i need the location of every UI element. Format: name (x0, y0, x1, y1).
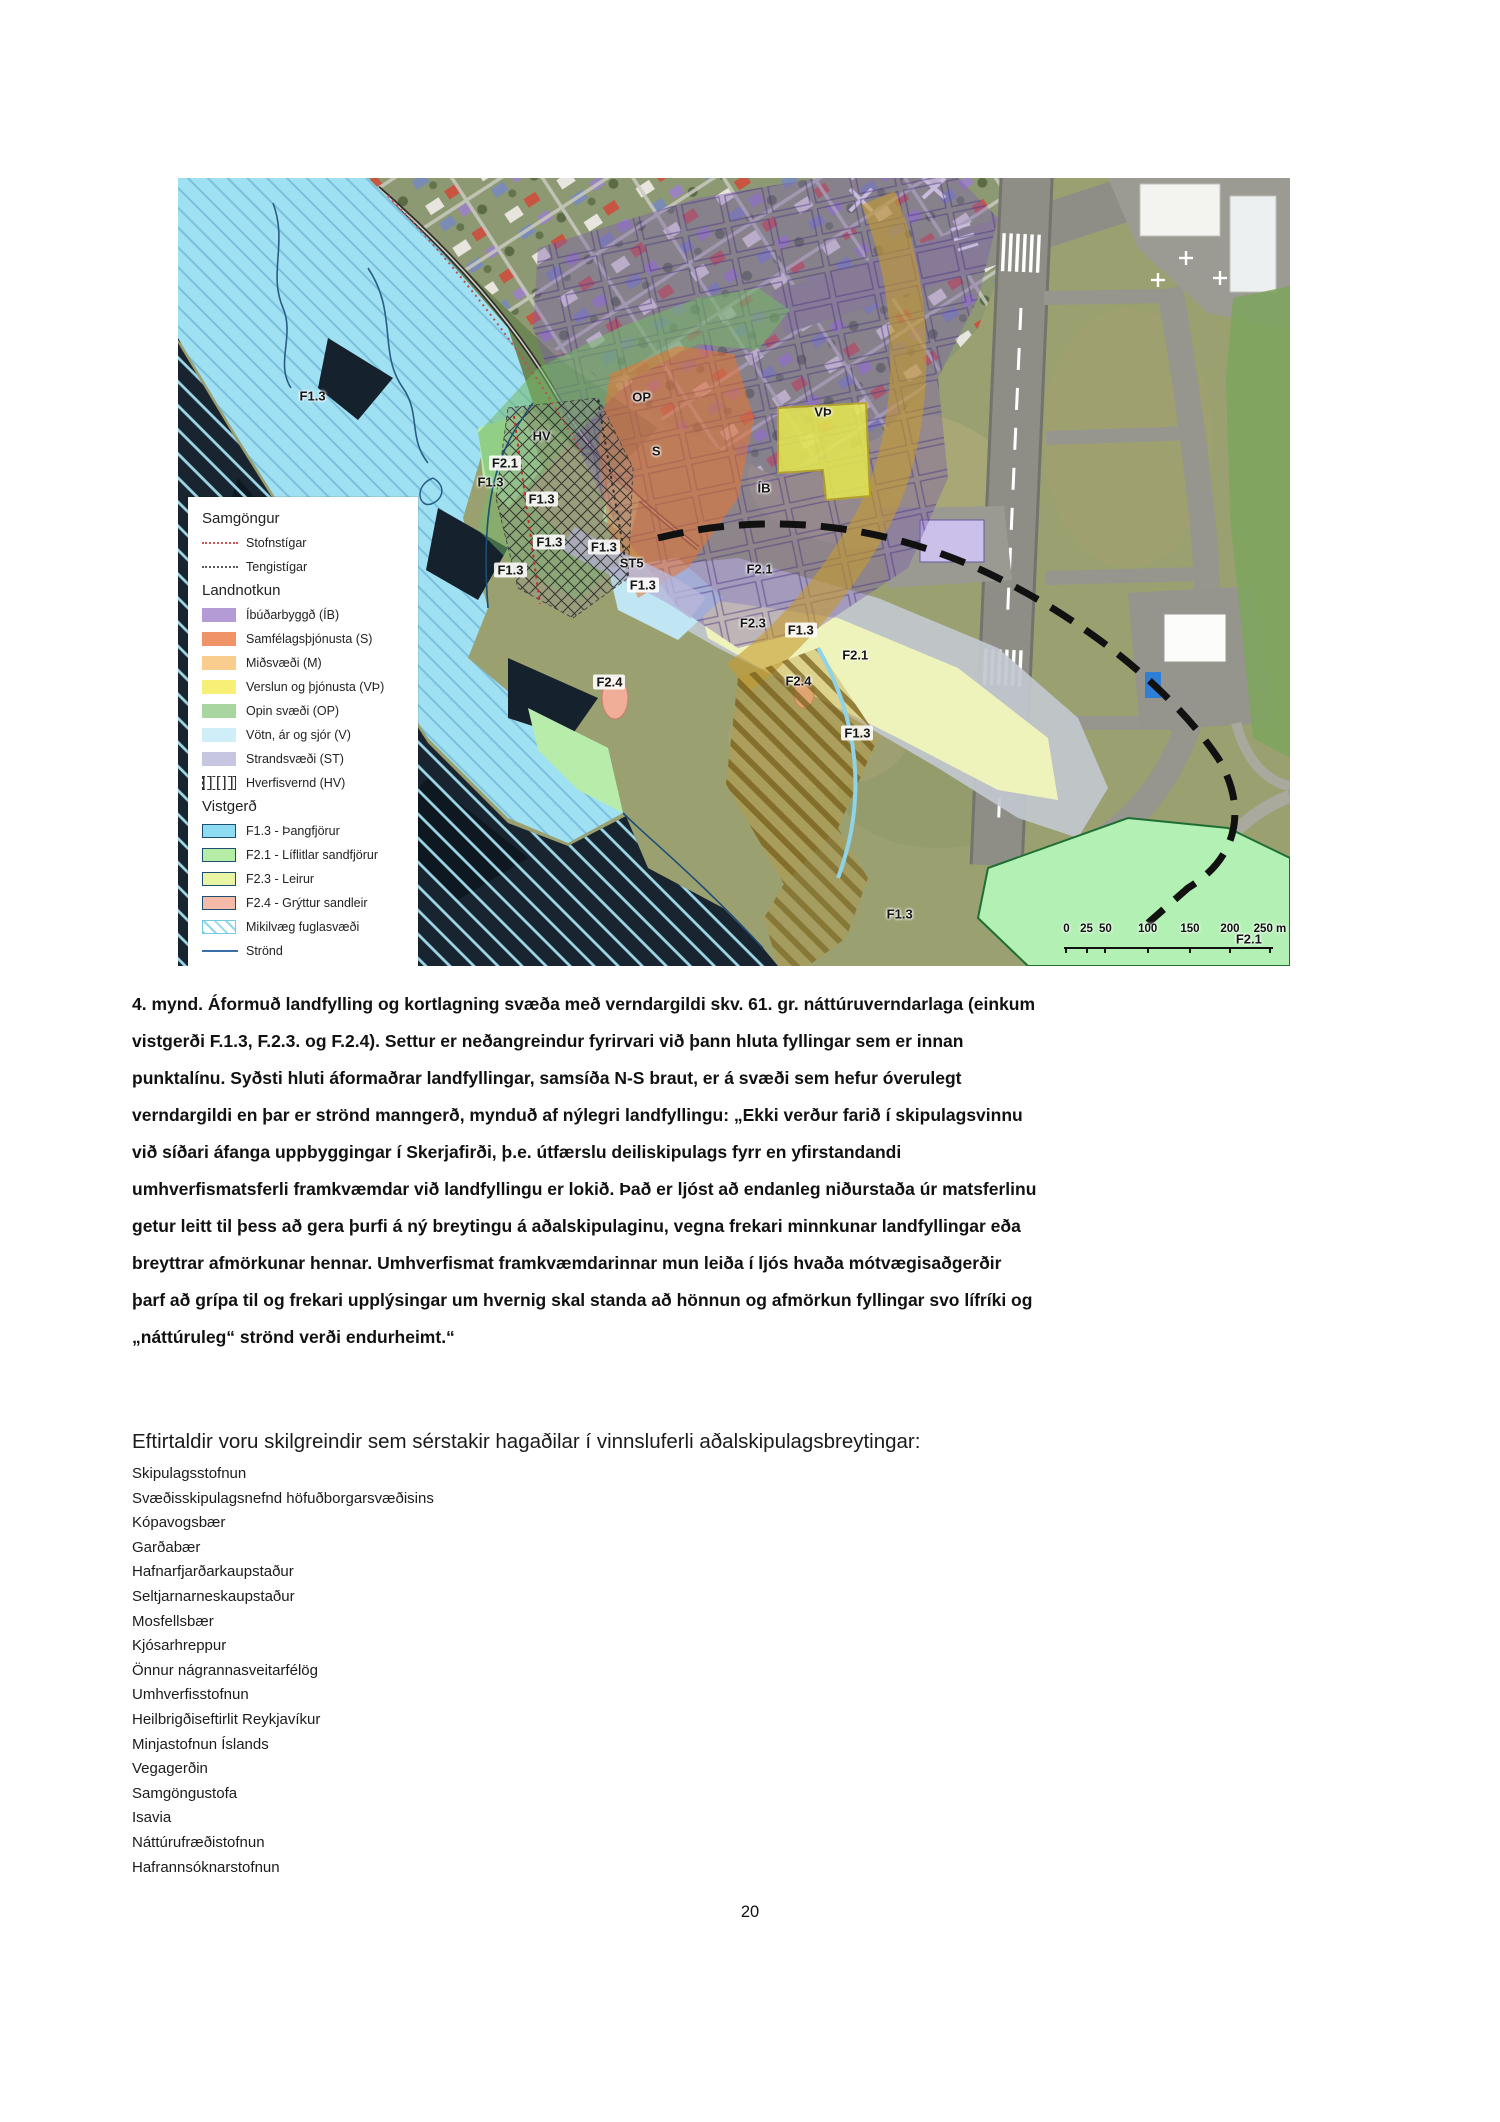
dotted-red-line-icon (202, 542, 238, 544)
color-swatch (202, 848, 236, 862)
shoreline-line-icon (202, 950, 238, 952)
document-page: F1.3F1.3F1.3F1.3F1.3F1.3F1.3F1.3F1.3F1.3… (0, 0, 1500, 2122)
bird-area-hatch-icon (202, 920, 236, 934)
list-item: Umhverfisstofnun (132, 1683, 434, 1708)
legend-row: F1.3 - Þangfjörur (202, 819, 418, 843)
dotted-black-line-icon (202, 566, 238, 568)
list-item: Vegagerðin (132, 1757, 434, 1782)
hangar-building (1140, 184, 1220, 236)
list-item: Kjósarhreppur (132, 1634, 434, 1659)
legend-row: F2.4 - Grýttur sandleir (202, 891, 418, 915)
list-item: Mosfellsbær (132, 1610, 434, 1635)
stakeholders-heading: Eftirtaldir voru skilgreindir sem sérsta… (132, 1430, 920, 1454)
legend-row: Verslun og þjónusta (VÞ) (202, 675, 418, 699)
color-swatch (202, 728, 236, 742)
legend-row: Vötn, ár og sjór (V) (202, 723, 418, 747)
list-item: Isavia (132, 1806, 434, 1831)
caption-line: þarf að grípa til og frekari upplýsingar… (132, 1282, 1390, 1319)
caption-line: getur leitt til þess að gera þurfi á ný … (132, 1208, 1390, 1245)
legend-section-title: Samgöngur (202, 510, 418, 527)
color-swatch (202, 680, 236, 694)
color-swatch (202, 608, 236, 622)
legend-row: F2.1 - Líflitlar sandfjörur (202, 843, 418, 867)
legend-row: Strönd (202, 939, 418, 963)
legend-row: Íbúðarbyggð (ÍB) (202, 603, 418, 627)
color-swatch (202, 752, 236, 766)
list-item: Hafnarfjarðarkaupstaður (132, 1560, 434, 1585)
legend-row: Strandsvæði (ST) (202, 747, 418, 771)
legend-row: Tengistígar (202, 555, 418, 579)
hangar-building (1230, 196, 1276, 292)
list-item: Svæðisskipulagsnefnd höfuðborgarsvæðisin… (132, 1487, 434, 1512)
list-item: Garðabær (132, 1536, 434, 1561)
caption-line: punktalínu. Syðsti hluti áformaðrar land… (132, 1060, 1390, 1097)
color-swatch (202, 872, 236, 886)
hangar-building (1164, 614, 1226, 662)
caption-line: 4. mynd. Áformuð landfylling og kortlagn… (132, 986, 1390, 1023)
caption-line: breyttrar afmörkunar hennar. Umhverfisma… (132, 1245, 1390, 1282)
map-legend: Samgöngur Stofnstígar Tengistígar Landno… (188, 497, 418, 966)
list-item: Minjastofnun Íslands (132, 1733, 434, 1758)
caption-line: umhverfismatsferli framkvæmdar við landf… (132, 1171, 1390, 1208)
f24-gravel-patch (602, 677, 628, 719)
caption-line: við síðari áfanga uppbyggingar í Skerjaf… (132, 1134, 1390, 1171)
hatch-swatch-icon (202, 776, 236, 790)
stakeholders-list: Skipulagsstofnun Svæðisskipulagsnefnd hö… (132, 1462, 434, 1880)
legend-row: Mikilvæg fuglasvæði (202, 915, 418, 939)
legend-row: F2.3 - Leirur (202, 867, 418, 891)
list-item: Skipulagsstofnun (132, 1462, 434, 1487)
legend-section-title: Vistgerð (202, 798, 418, 815)
color-swatch (202, 632, 236, 646)
caption-line: vistgerði F.1.3, F.2.3. og F.2.4). Settu… (132, 1023, 1390, 1060)
caption-line: „náttúruleg“ strönd verði endurheimt.“ (132, 1319, 1390, 1356)
color-swatch (202, 824, 236, 838)
list-item: Kópavogsbær (132, 1511, 434, 1536)
legend-row: Stofnstígar (202, 531, 418, 555)
legend-row: Opin svæði (OP) (202, 699, 418, 723)
legend-row: Miðsvæði (M) (202, 651, 418, 675)
list-item: Önnur nágrannasveitarfélög (132, 1659, 434, 1684)
color-swatch (202, 896, 236, 910)
legend-row: Hverfisvernd (HV) (202, 771, 418, 795)
list-item: Heilbrigðiseftirlit Reykjavíkur (132, 1708, 434, 1733)
legend-section-title: Landnotkun (202, 582, 418, 599)
caption-line: verndargildi en þar er strönd manngerð, … (132, 1097, 1390, 1134)
list-item: Samgöngustofa (132, 1782, 434, 1807)
page-number: 20 (0, 1903, 1500, 1922)
color-swatch (202, 656, 236, 670)
list-item: Hafrannsóknarstofnun (132, 1856, 434, 1881)
list-item: Náttúrufræðistofnun (132, 1831, 434, 1856)
figure-caption: 4. mynd. Áformuð landfylling og kortlagn… (132, 986, 1390, 1356)
planning-map-figure: F1.3F1.3F1.3F1.3F1.3F1.3F1.3F1.3F1.3F1.3… (178, 178, 1290, 966)
color-swatch (202, 704, 236, 718)
legend-row: Samfélagsþjónusta (S) (202, 627, 418, 651)
list-item: Seltjarnarneskaupstaður (132, 1585, 434, 1610)
